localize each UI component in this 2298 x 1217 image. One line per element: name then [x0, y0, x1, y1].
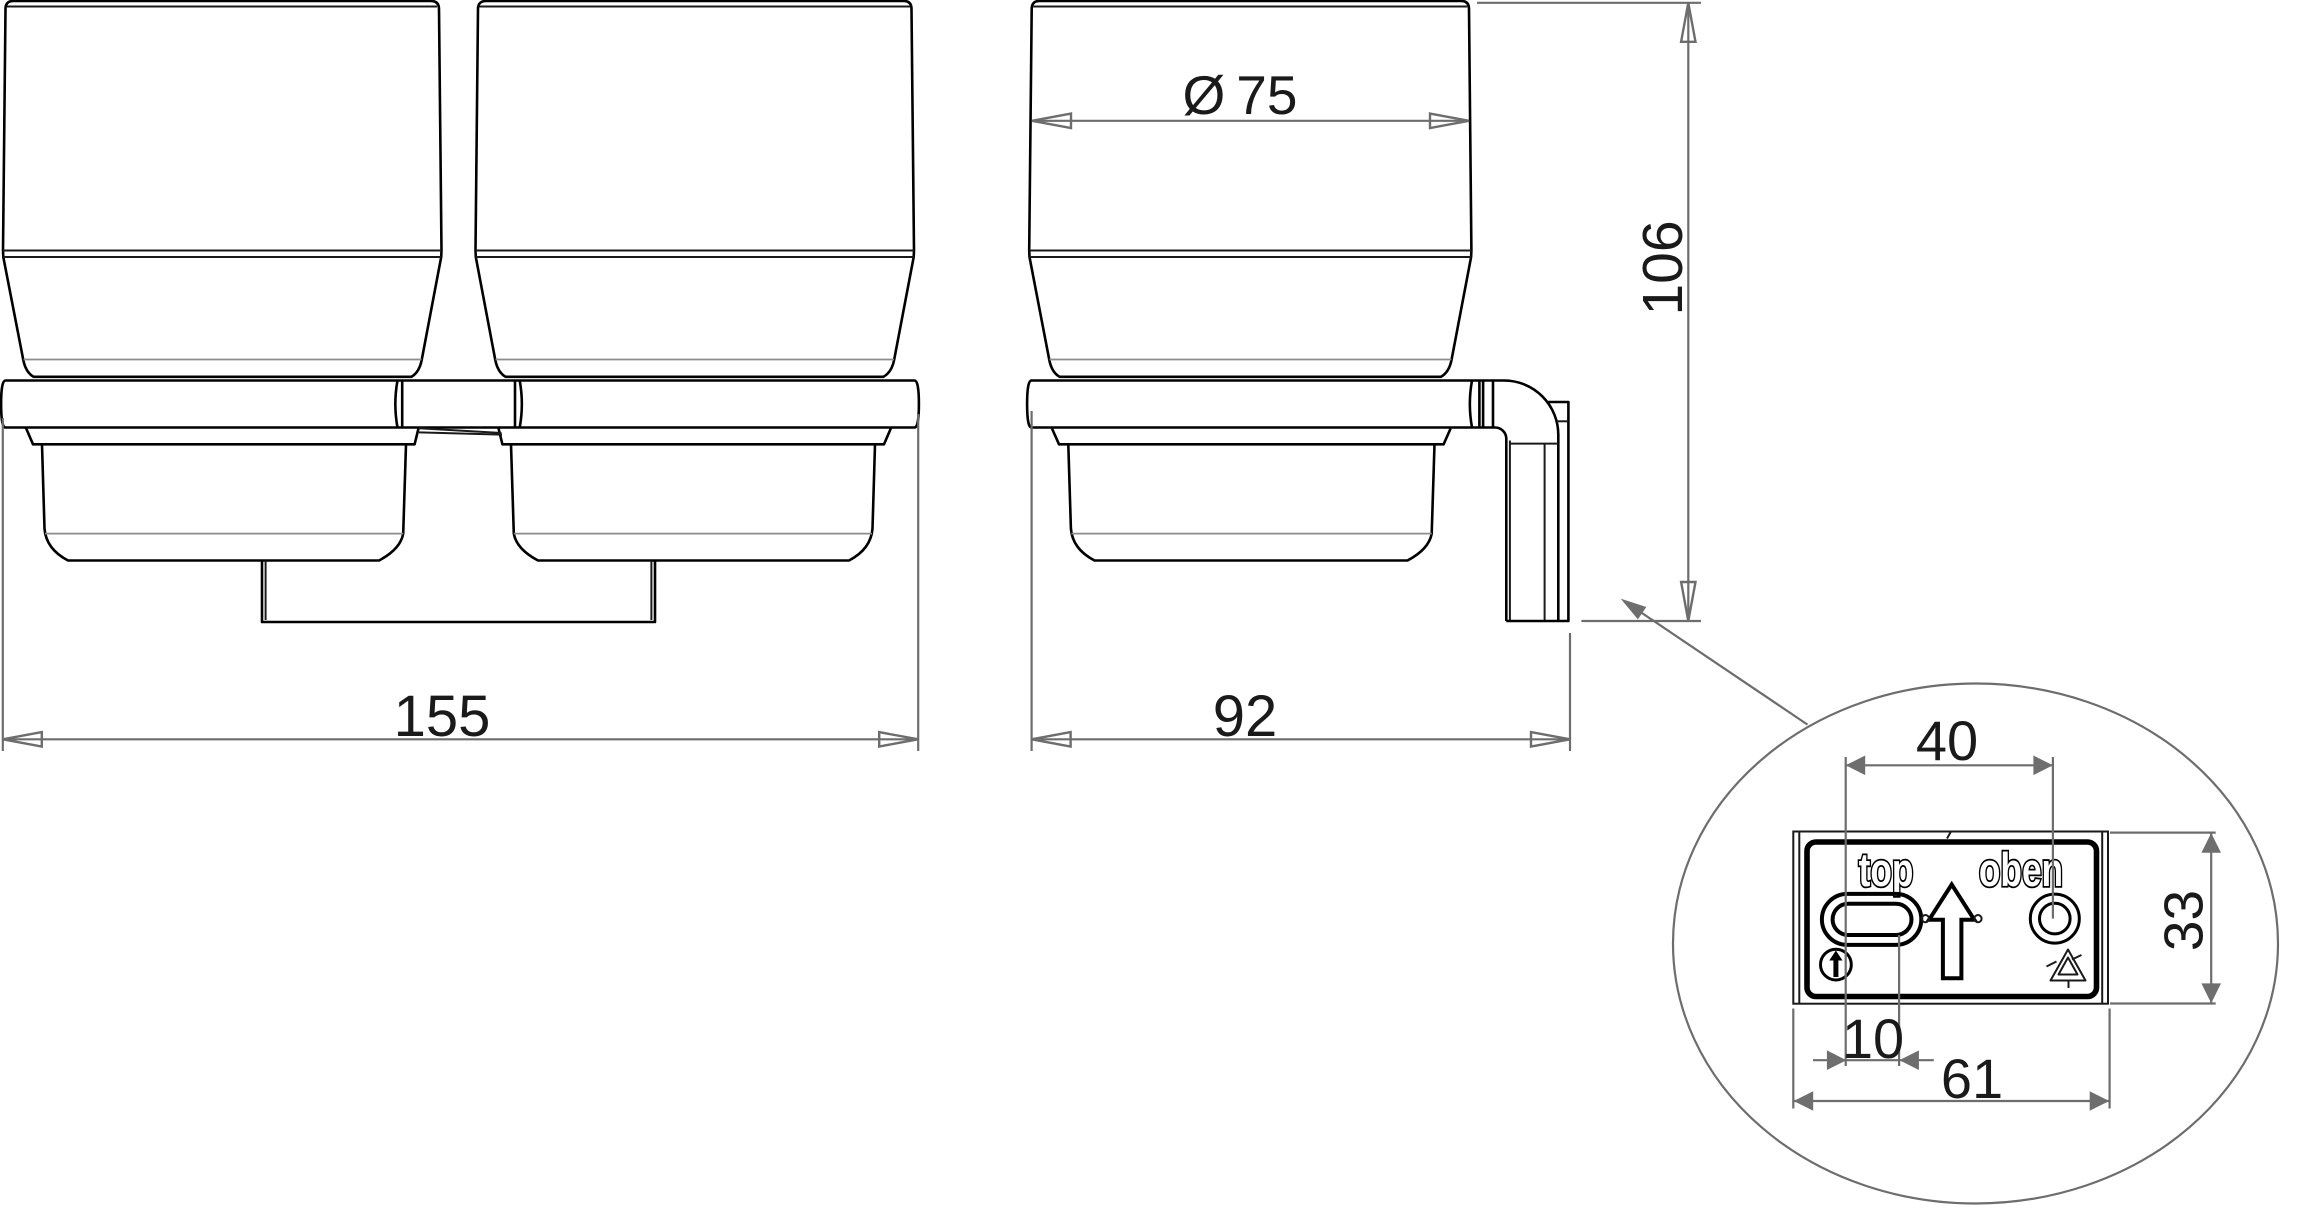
- svg-text:Ø 75: Ø 75: [1183, 64, 1298, 126]
- svg-text:92: 92: [1213, 684, 1278, 749]
- svg-text:10: 10: [1842, 1007, 1904, 1070]
- svg-text:oben: oben: [1979, 843, 2063, 896]
- svg-text:61: 61: [1941, 1047, 2003, 1110]
- svg-text:33: 33: [2153, 890, 2215, 951]
- svg-text:top: top: [1859, 843, 1914, 896]
- svg-text:155: 155: [394, 684, 491, 749]
- svg-text:106: 106: [1631, 220, 1695, 315]
- svg-text:40: 40: [1916, 709, 1978, 772]
